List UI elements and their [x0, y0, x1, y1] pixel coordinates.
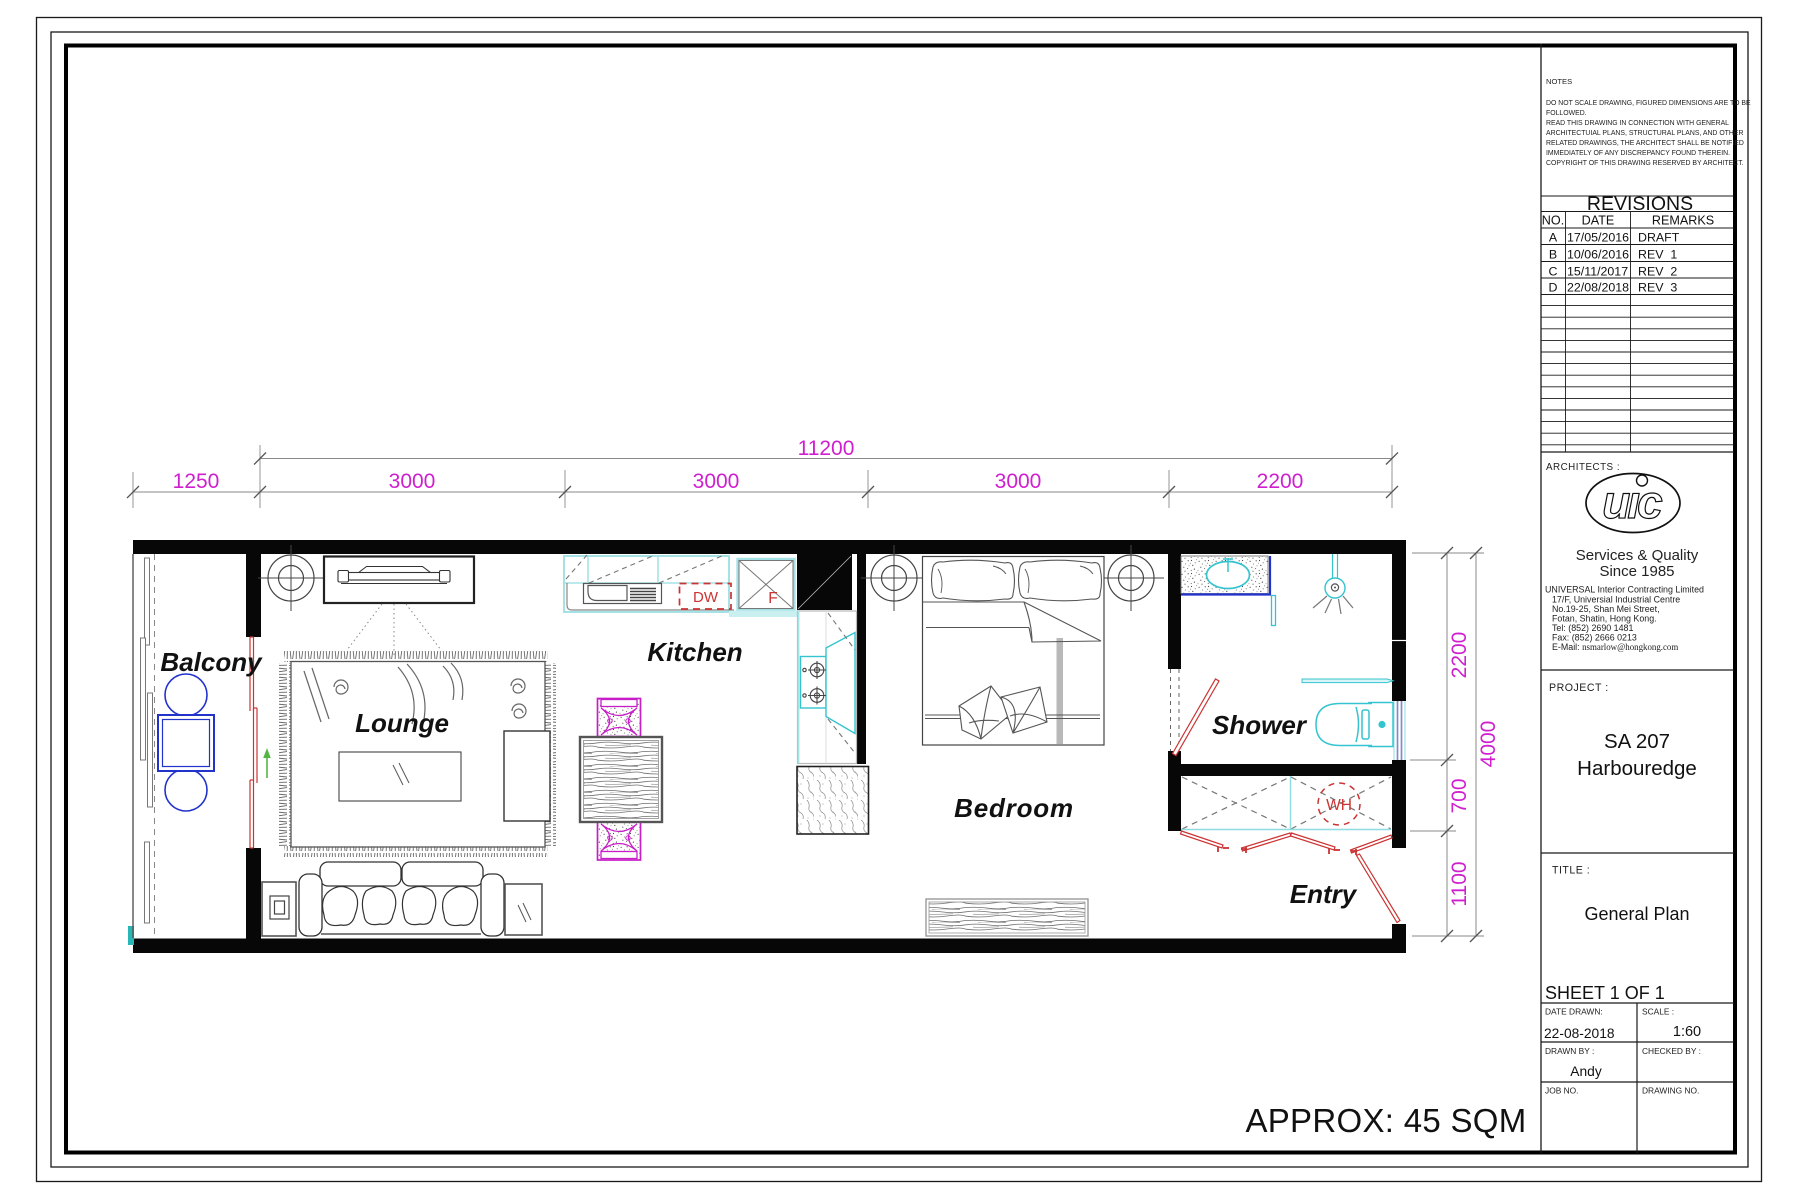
svg-text:IMMEDIATELY OF ANY DISCREPANCY: IMMEDIATELY OF ANY DISCREPANCY FOUND THE…: [1546, 150, 1730, 157]
svg-text:DRAFT: DRAFT: [1638, 231, 1680, 245]
svg-text:10/06/2016: 10/06/2016: [1567, 248, 1629, 262]
svg-text:SHEET 1 OF 1: SHEET 1 OF 1: [1545, 983, 1665, 1003]
svg-text:Kitchen: Kitchen: [647, 637, 742, 667]
svg-text:2200: 2200: [1257, 470, 1304, 493]
svg-text:REV 3: REV 3: [1638, 281, 1677, 295]
svg-text:COPYRIGHT OF THIS DRAWING RESE: COPYRIGHT OF THIS DRAWING RESERVED BY AR…: [1546, 160, 1744, 167]
svg-text:No.19-25, Shan Mei Street,: No.19-25, Shan Mei Street,: [1552, 604, 1660, 614]
svg-text:DRAWN BY :: DRAWN BY :: [1545, 1046, 1594, 1056]
svg-text:Lounge: Lounge: [355, 708, 449, 738]
svg-text:17/05/2016: 17/05/2016: [1567, 231, 1629, 245]
svg-text:NO.: NO.: [1542, 214, 1564, 228]
svg-text:1250: 1250: [173, 470, 220, 493]
svg-text:Shower: Shower: [1212, 710, 1308, 740]
svg-text:FOLLOWED.: FOLLOWED.: [1546, 110, 1587, 117]
svg-text:3000: 3000: [995, 470, 1042, 493]
svg-text:A: A: [1549, 231, 1558, 245]
svg-text:Fax: (852) 2666 0213: Fax: (852) 2666 0213: [1552, 633, 1637, 643]
svg-text:DRAWING NO.: DRAWING NO.: [1642, 1086, 1699, 1096]
svg-text:TITLE :: TITLE :: [1552, 865, 1590, 877]
svg-text:DATE: DATE: [1582, 214, 1615, 228]
svg-text:Harbouredge: Harbouredge: [1577, 757, 1697, 780]
svg-text:3000: 3000: [693, 470, 740, 493]
svg-text:Tel: (852) 2690 1481: Tel: (852) 2690 1481: [1552, 623, 1633, 633]
svg-text:JOB NO.: JOB NO.: [1545, 1086, 1579, 1096]
svg-text:1100: 1100: [1448, 861, 1471, 906]
svg-text:Fotan, Shatin, Hong Kong.: Fotan, Shatin, Hong Kong.: [1552, 614, 1657, 624]
svg-text:NOTES: NOTES: [1546, 77, 1572, 86]
svg-text:General Plan: General Plan: [1584, 904, 1689, 924]
svg-text:ARCHITECTS :: ARCHITECTS :: [1546, 462, 1620, 473]
svg-text:Balcony: Balcony: [160, 647, 263, 677]
svg-text:SA 207: SA 207: [1604, 730, 1670, 753]
svg-text:CHECKED BY :: CHECKED BY :: [1642, 1046, 1701, 1056]
svg-text:Since 1985: Since 1985: [1599, 563, 1674, 580]
svg-text:11200: 11200: [798, 437, 855, 460]
svg-text:Bedroom: Bedroom: [954, 793, 1074, 823]
svg-text:DATE DRAWN:: DATE DRAWN:: [1545, 1007, 1603, 1017]
svg-text:REV 1: REV 1: [1638, 248, 1677, 262]
svg-text:22/08/2018: 22/08/2018: [1567, 281, 1629, 295]
svg-text:DW: DW: [693, 589, 719, 606]
svg-text:REVISIONS: REVISIONS: [1587, 193, 1693, 215]
svg-text:700: 700: [1448, 778, 1471, 813]
svg-text:READ THIS DRAWING IN CONNECTIO: READ THIS DRAWING IN CONNECTION WITH GEN…: [1546, 120, 1729, 127]
svg-text:UNIVERSAL Interior Contracting: UNIVERSAL Interior Contracting Limited: [1545, 585, 1704, 595]
svg-text:PROJECT :: PROJECT :: [1549, 682, 1609, 694]
svg-text:RELATED DRAWINGS, THE ARCHITEC: RELATED DRAWINGS, THE ARCHITECT SHALL BE…: [1546, 140, 1744, 147]
svg-text:1:60: 1:60: [1673, 1024, 1701, 1040]
svg-text:15/11/2017: 15/11/2017: [1567, 265, 1628, 279]
svg-text:APPROX: 45 SQM: APPROX: 45 SQM: [1245, 1102, 1526, 1139]
svg-text:uıc: uıc: [1602, 476, 1662, 528]
svg-text:2200: 2200: [1448, 632, 1471, 679]
svg-text:17/F, Universial Industrial Ce: 17/F, Universial Industrial Centre: [1552, 595, 1680, 605]
svg-text:4000: 4000: [1477, 721, 1500, 768]
svg-text:E-Mail: nsmarlow@hongkong.com: E-Mail: nsmarlow@hongkong.com: [1552, 642, 1678, 652]
svg-text:WH: WH: [1326, 797, 1352, 814]
svg-text:Andy: Andy: [1570, 1064, 1602, 1079]
svg-text:ARCHITECTUIAL PLANS, STRUCTURA: ARCHITECTUIAL PLANS, STRUCTURAL PLANS, A…: [1546, 130, 1743, 137]
svg-text:3000: 3000: [389, 470, 436, 493]
svg-text:22-08-2018: 22-08-2018: [1544, 1026, 1615, 1041]
svg-text:Entry: Entry: [1290, 879, 1358, 909]
svg-text:D: D: [1549, 281, 1558, 295]
svg-text:C: C: [1549, 265, 1558, 279]
svg-text:REMARKS: REMARKS: [1652, 214, 1714, 228]
svg-text:DO NOT SCALE DRAWING, FIGURED: DO NOT SCALE DRAWING, FIGURED DIMENSIONS…: [1546, 100, 1751, 107]
svg-text:Services & Quality: Services & Quality: [1576, 547, 1699, 564]
svg-text:SCALE :: SCALE :: [1642, 1007, 1674, 1017]
svg-text:F: F: [768, 590, 777, 607]
svg-text:B: B: [1549, 248, 1557, 262]
svg-text:REV 2: REV 2: [1638, 265, 1677, 279]
